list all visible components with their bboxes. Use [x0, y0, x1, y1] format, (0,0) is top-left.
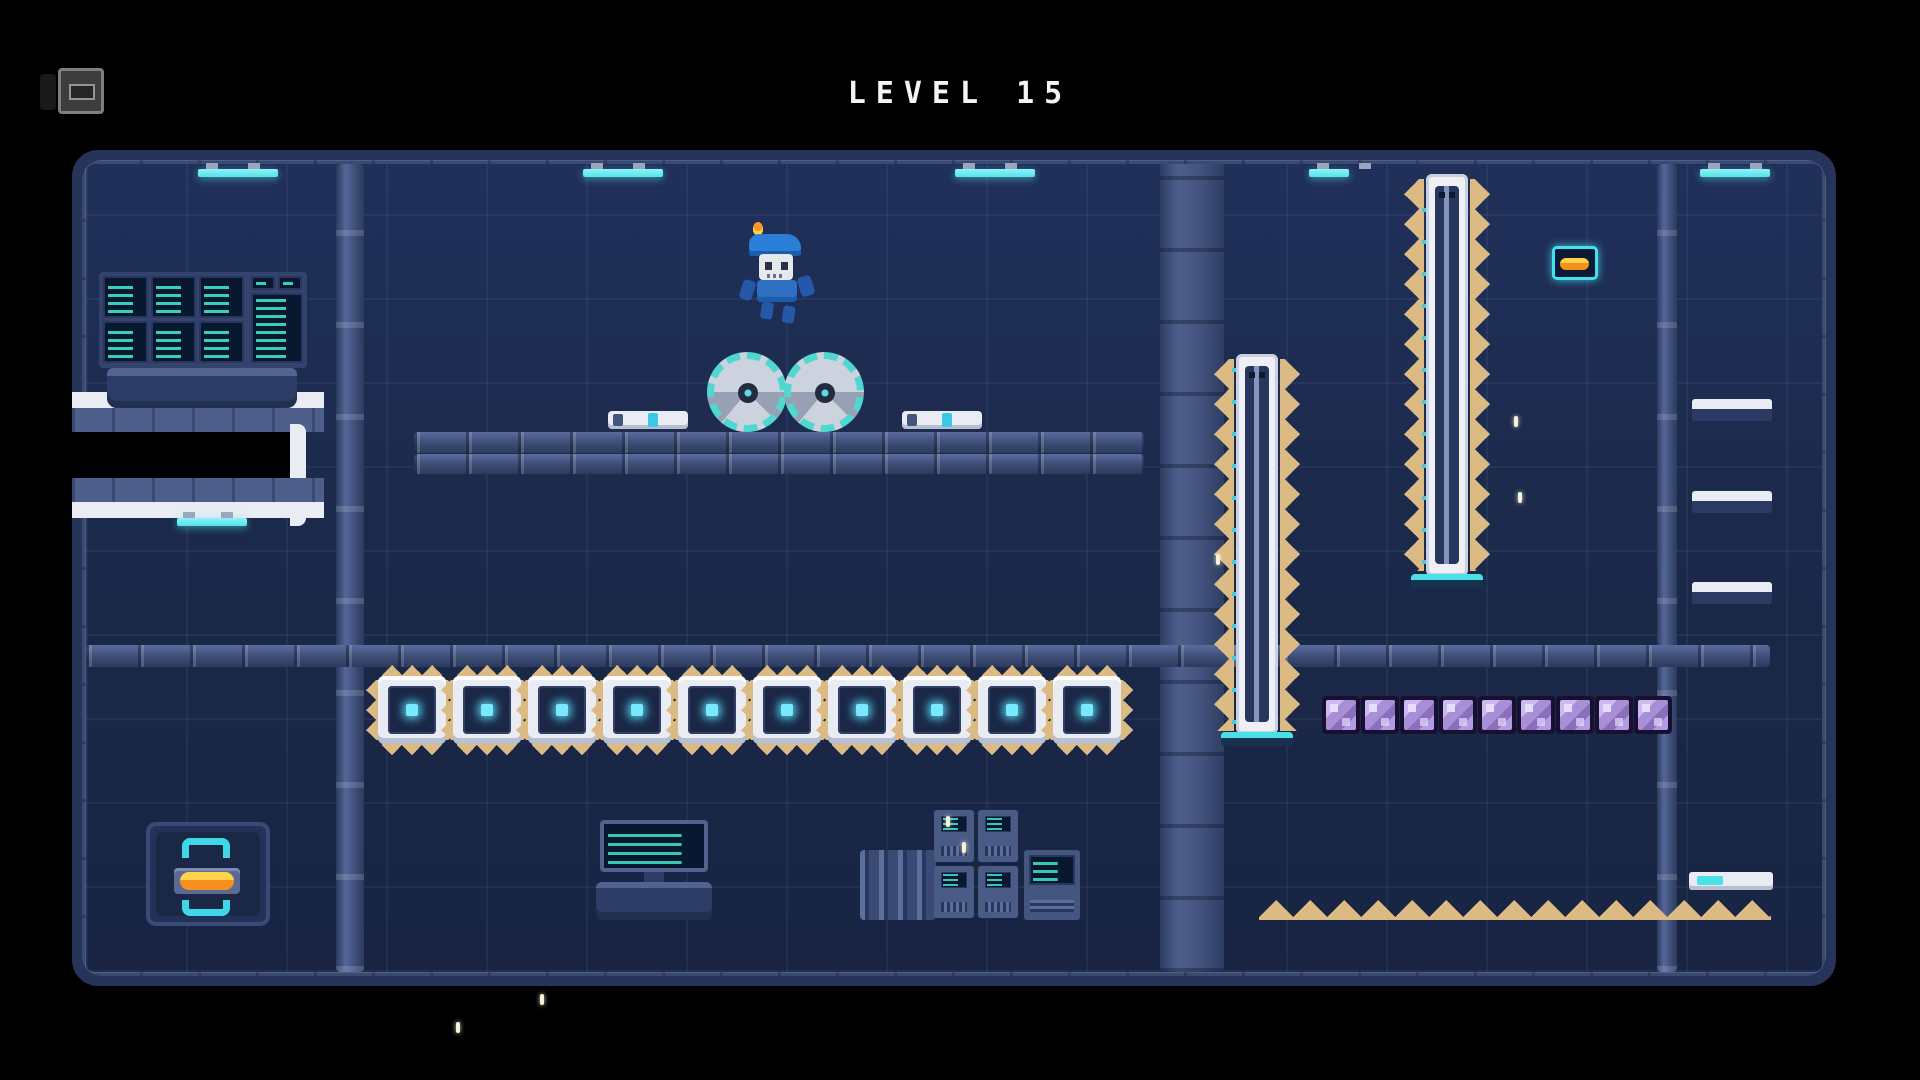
floor-platform: [1689, 872, 1773, 890]
console-monitor: [596, 820, 712, 920]
player-eyes: [765, 262, 772, 270]
horizontal-pipe: [86, 645, 1770, 667]
player-helmet: [749, 234, 801, 256]
dock-bracket-top: [182, 838, 230, 858]
spike-bottom: [907, 744, 967, 755]
spike-block-core: [781, 704, 793, 716]
console-stand: [644, 872, 664, 882]
battery-pickup: [1552, 246, 1598, 280]
spike-top: [382, 665, 442, 676]
spike-block-core: [556, 704, 568, 716]
spike-block: [528, 676, 596, 744]
battery-dock: [146, 822, 270, 926]
spike-top: [1057, 665, 1117, 676]
wall-spikes: [1214, 359, 1234, 731]
ceiling-lamp: [583, 169, 663, 177]
console-base: [596, 882, 712, 920]
monitor-bank: [99, 272, 307, 368]
crystal-block: [1595, 696, 1633, 734]
spike-left: [441, 680, 453, 740]
spike-block: [978, 676, 1046, 744]
spike-block: [828, 676, 896, 744]
player-character: [739, 226, 831, 320]
spike-left: [516, 680, 528, 740]
spike-pillar: [1236, 354, 1278, 734]
ceiling-lamp: [1700, 169, 1770, 177]
spike-left: [666, 680, 678, 740]
spike-block: [603, 676, 671, 744]
ceiling-lamp: [955, 169, 1035, 177]
monitor-screen: [151, 276, 196, 318]
ceiling-lamp: [1309, 169, 1349, 177]
spike-bottom: [607, 744, 667, 755]
spark-particle: [946, 816, 950, 827]
wall-ledge: [1692, 491, 1772, 513]
server-box: [978, 810, 1018, 862]
monitor-screen: [103, 276, 148, 318]
monitor-screen-small: [251, 276, 275, 290]
spike-top: [682, 665, 742, 676]
spike-block: [1053, 676, 1121, 744]
floor-spikes: [1259, 900, 1771, 920]
wall-ledge: [1692, 399, 1772, 421]
spike-bottom: [682, 744, 742, 755]
moving-platform: [608, 411, 688, 429]
pillar-base: [1221, 732, 1293, 746]
spike-bottom: [457, 744, 517, 755]
spike-block-core: [1081, 704, 1093, 716]
spike-top: [832, 665, 892, 676]
dock-bracket-bottom: [182, 900, 230, 916]
monitor-side: [251, 276, 303, 364]
spike-left: [741, 680, 753, 740]
wall-spikes: [1404, 179, 1424, 571]
crystal-block-row: [1322, 696, 1672, 734]
console-screen: [600, 820, 708, 872]
moving-platform: [902, 411, 982, 429]
spark-particle: [1518, 492, 1522, 503]
spike-bottom: [1057, 744, 1117, 755]
spike-block-core: [856, 704, 868, 716]
monitor-screen: [103, 321, 148, 363]
crystal-block: [1400, 696, 1438, 734]
spike-bottom: [832, 744, 892, 755]
player-arm: [738, 278, 757, 301]
room-interior: [86, 164, 1822, 972]
wall-ledge: [1692, 582, 1772, 604]
mini-computer: [1024, 850, 1080, 920]
horizontal-pipe: [414, 432, 1144, 453]
monitor-screen-small: [278, 276, 302, 290]
spark-particle: [456, 1022, 460, 1033]
horizontal-pipe: [414, 454, 1144, 474]
spark-particle: [1216, 554, 1220, 565]
level-title: LEVEL 15: [0, 76, 1920, 111]
spike-right: [1121, 680, 1133, 740]
game-screen[interactable]: LEVEL 15: [0, 0, 1920, 1080]
spike-block: [753, 676, 821, 744]
spark-particle: [1514, 416, 1518, 427]
saw-blade: [784, 352, 864, 432]
player-mouth: [767, 274, 785, 278]
spike-block: [678, 676, 746, 744]
crystal-block: [1556, 696, 1594, 734]
spike-top: [907, 665, 967, 676]
spike-block-core: [481, 704, 493, 716]
spike-top: [457, 665, 517, 676]
spike-top: [757, 665, 817, 676]
ceiling-lamp: [198, 169, 278, 177]
spark-particle: [962, 842, 966, 853]
monitor-desk: [107, 368, 297, 408]
slat-cabinet: [860, 850, 936, 920]
spike-block-core: [706, 704, 718, 716]
level-room: [72, 150, 1836, 986]
dock-battery: [180, 872, 234, 890]
pillar-base: [1411, 574, 1483, 588]
crystal-block: [1439, 696, 1477, 734]
vertical-pipe: [1657, 164, 1677, 972]
spike-top: [982, 665, 1042, 676]
crystal-block: [1322, 696, 1360, 734]
spike-block-core: [631, 704, 643, 716]
saw-blade: [707, 352, 787, 432]
spike-block: [903, 676, 971, 744]
alcove-pipe-band: [72, 478, 324, 502]
monitor-screen: [151, 321, 196, 363]
vertical-pipe: [336, 164, 364, 972]
alcove-pipe-band: [72, 408, 324, 432]
spike-bottom: [382, 744, 442, 755]
crystal-block: [1517, 696, 1555, 734]
spike-block: [378, 676, 446, 744]
monitor-screen: [199, 276, 244, 318]
server-box: [934, 866, 974, 918]
wall-spikes: [1280, 359, 1300, 731]
spike-block-row: [378, 676, 1121, 744]
spark-particle: [540, 994, 544, 1005]
monitor-grid: [103, 276, 247, 364]
spike-left: [366, 680, 378, 740]
spike-left: [891, 680, 903, 740]
spike-left: [1041, 680, 1053, 740]
server-box: [934, 810, 974, 862]
left-exit-opening: [42, 432, 290, 478]
monitor-screen-large: [251, 293, 303, 363]
ceiling-lamp: [177, 518, 247, 526]
spike-pillar: [1426, 174, 1468, 576]
player-legs: [760, 301, 774, 320]
spike-bottom: [757, 744, 817, 755]
player-arm: [796, 274, 815, 297]
spike-bottom: [532, 744, 592, 755]
spike-block-core: [1006, 704, 1018, 716]
server-box: [978, 866, 1018, 918]
spike-left: [816, 680, 828, 740]
crystal-block: [1634, 696, 1672, 734]
player-torso: [757, 280, 797, 302]
alcove-border: [72, 502, 324, 518]
spike-top: [607, 665, 667, 676]
spike-bottom: [982, 744, 1042, 755]
spike-top: [532, 665, 592, 676]
spike-block: [453, 676, 521, 744]
spike-left: [591, 680, 603, 740]
spike-block-core: [406, 704, 418, 716]
wall-spikes: [1470, 179, 1490, 571]
crystal-block: [1361, 696, 1399, 734]
monitor-screen: [199, 321, 244, 363]
spike-left: [966, 680, 978, 740]
spike-block-core: [931, 704, 943, 716]
crystal-block: [1478, 696, 1516, 734]
